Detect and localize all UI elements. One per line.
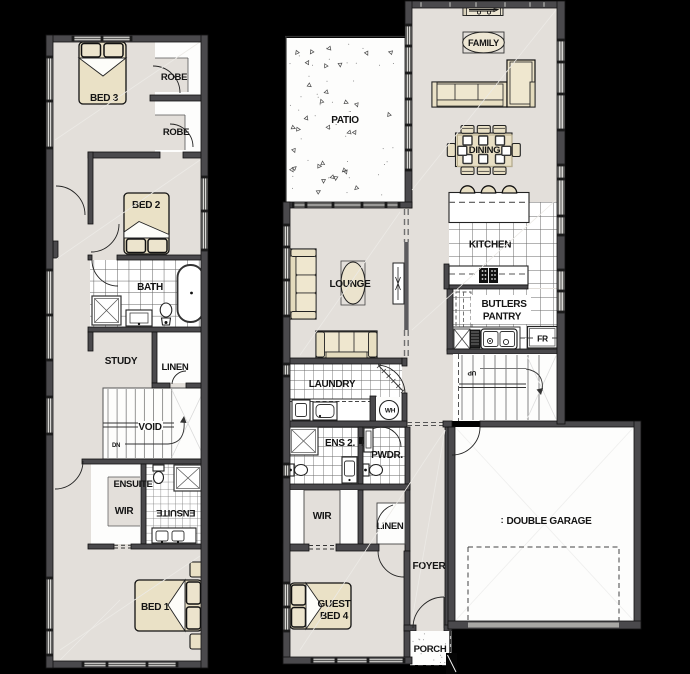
svg-text:BATH: BATH bbox=[137, 282, 163, 293]
svg-text:LINEN: LINEN bbox=[376, 521, 403, 532]
svg-text:UP: UP bbox=[467, 369, 476, 376]
svg-text:ROBE: ROBE bbox=[161, 72, 187, 83]
svg-text:LOUNGE: LOUNGE bbox=[330, 279, 372, 290]
svg-text:STUDY: STUDY bbox=[105, 356, 138, 367]
svg-text:BUTLERS: BUTLERS bbox=[481, 299, 527, 310]
svg-text:VOID: VOID bbox=[138, 422, 161, 433]
svg-text:DINING: DINING bbox=[469, 145, 500, 156]
svg-text:FR: FR bbox=[537, 334, 548, 344]
svg-text:LAUNDRY: LAUNDRY bbox=[309, 379, 356, 390]
svg-text:BED 1: BED 1 bbox=[141, 602, 170, 613]
svg-text:BED 3: BED 3 bbox=[90, 93, 119, 104]
svg-text:GUEST: GUEST bbox=[318, 599, 351, 610]
svg-text:ENSUITE: ENSUITE bbox=[156, 507, 195, 518]
svg-text:PWDR.: PWDR. bbox=[371, 450, 403, 461]
svg-text::: : bbox=[501, 515, 504, 525]
svg-text:KITCHEN: KITCHEN bbox=[469, 240, 511, 251]
svg-text:ENSUITE: ENSUITE bbox=[113, 479, 152, 490]
svg-text:WIR: WIR bbox=[115, 506, 135, 517]
svg-text:WIR: WIR bbox=[313, 511, 333, 522]
svg-text:DOUBLE GARAGE: DOUBLE GARAGE bbox=[507, 516, 593, 527]
svg-text:BED 2: BED 2 bbox=[132, 200, 161, 211]
svg-text:PORCH: PORCH bbox=[414, 644, 447, 655]
svg-text:ROBE: ROBE bbox=[163, 127, 189, 138]
svg-text:ENS 2.: ENS 2. bbox=[325, 438, 355, 449]
svg-text:LINEN: LINEN bbox=[161, 362, 188, 373]
svg-text:DN: DN bbox=[112, 443, 120, 449]
svg-text:FAMILY: FAMILY bbox=[468, 38, 499, 48]
svg-text:PANTRY: PANTRY bbox=[483, 312, 522, 323]
svg-text:FOYER: FOYER bbox=[413, 561, 447, 572]
svg-text:WH: WH bbox=[385, 408, 396, 415]
svg-text:PATIO: PATIO bbox=[331, 115, 359, 126]
